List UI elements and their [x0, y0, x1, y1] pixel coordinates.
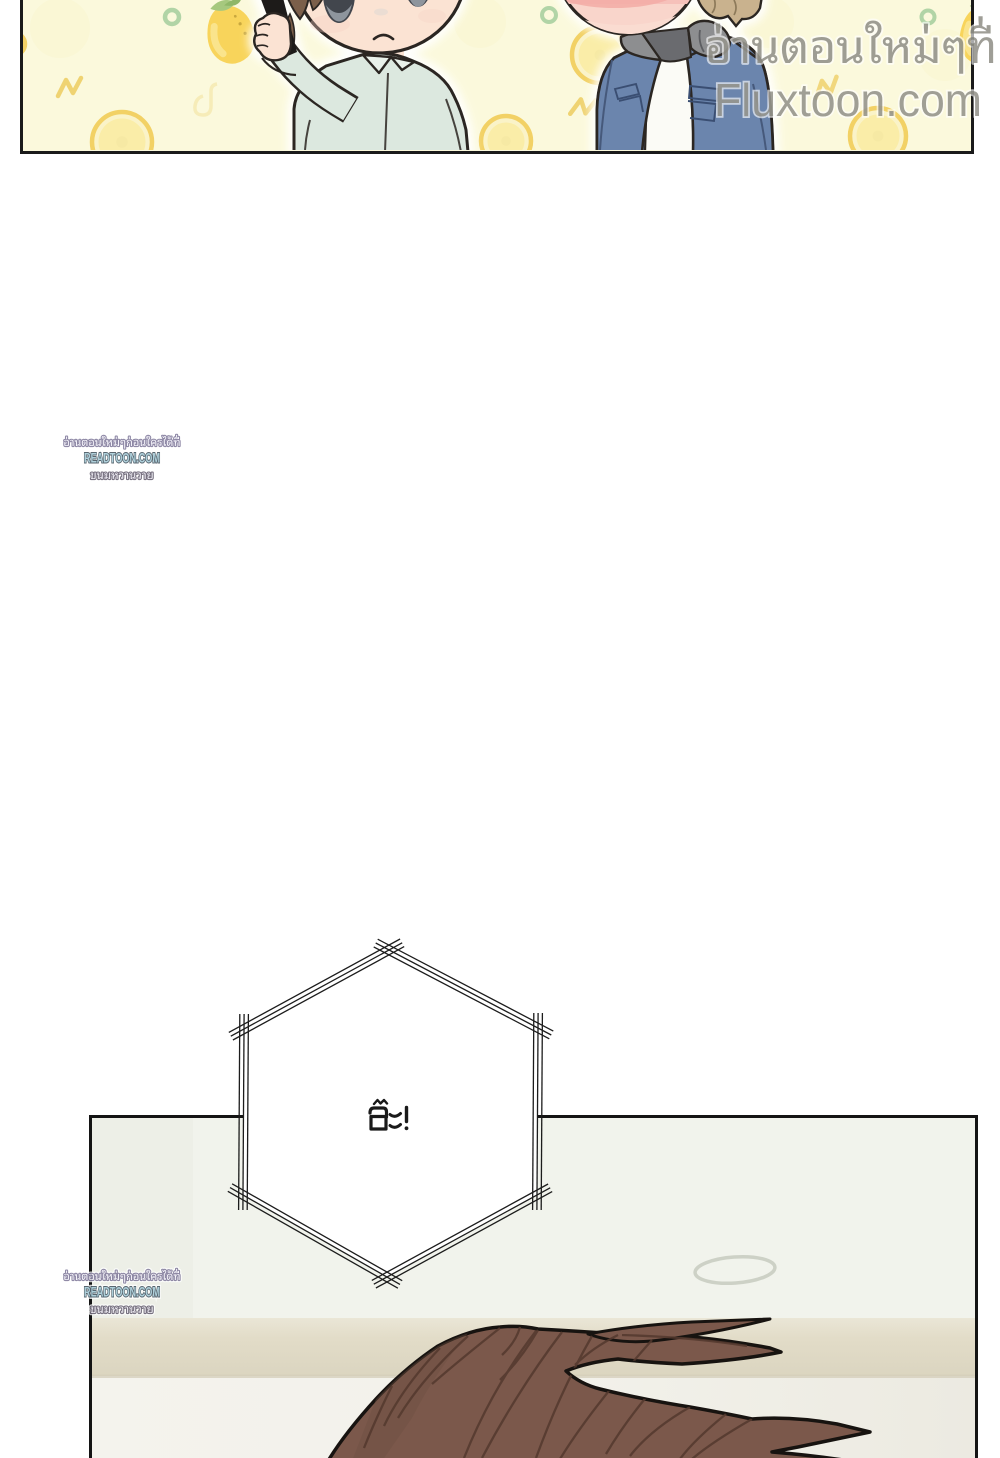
svg-text:READTOON.COM: READTOON.COM — [84, 451, 160, 467]
svg-text:Fluxtoon.com: Fluxtoon.com — [714, 74, 982, 126]
svg-text:READTOON.COM: READTOON.COM — [84, 1284, 160, 1300]
